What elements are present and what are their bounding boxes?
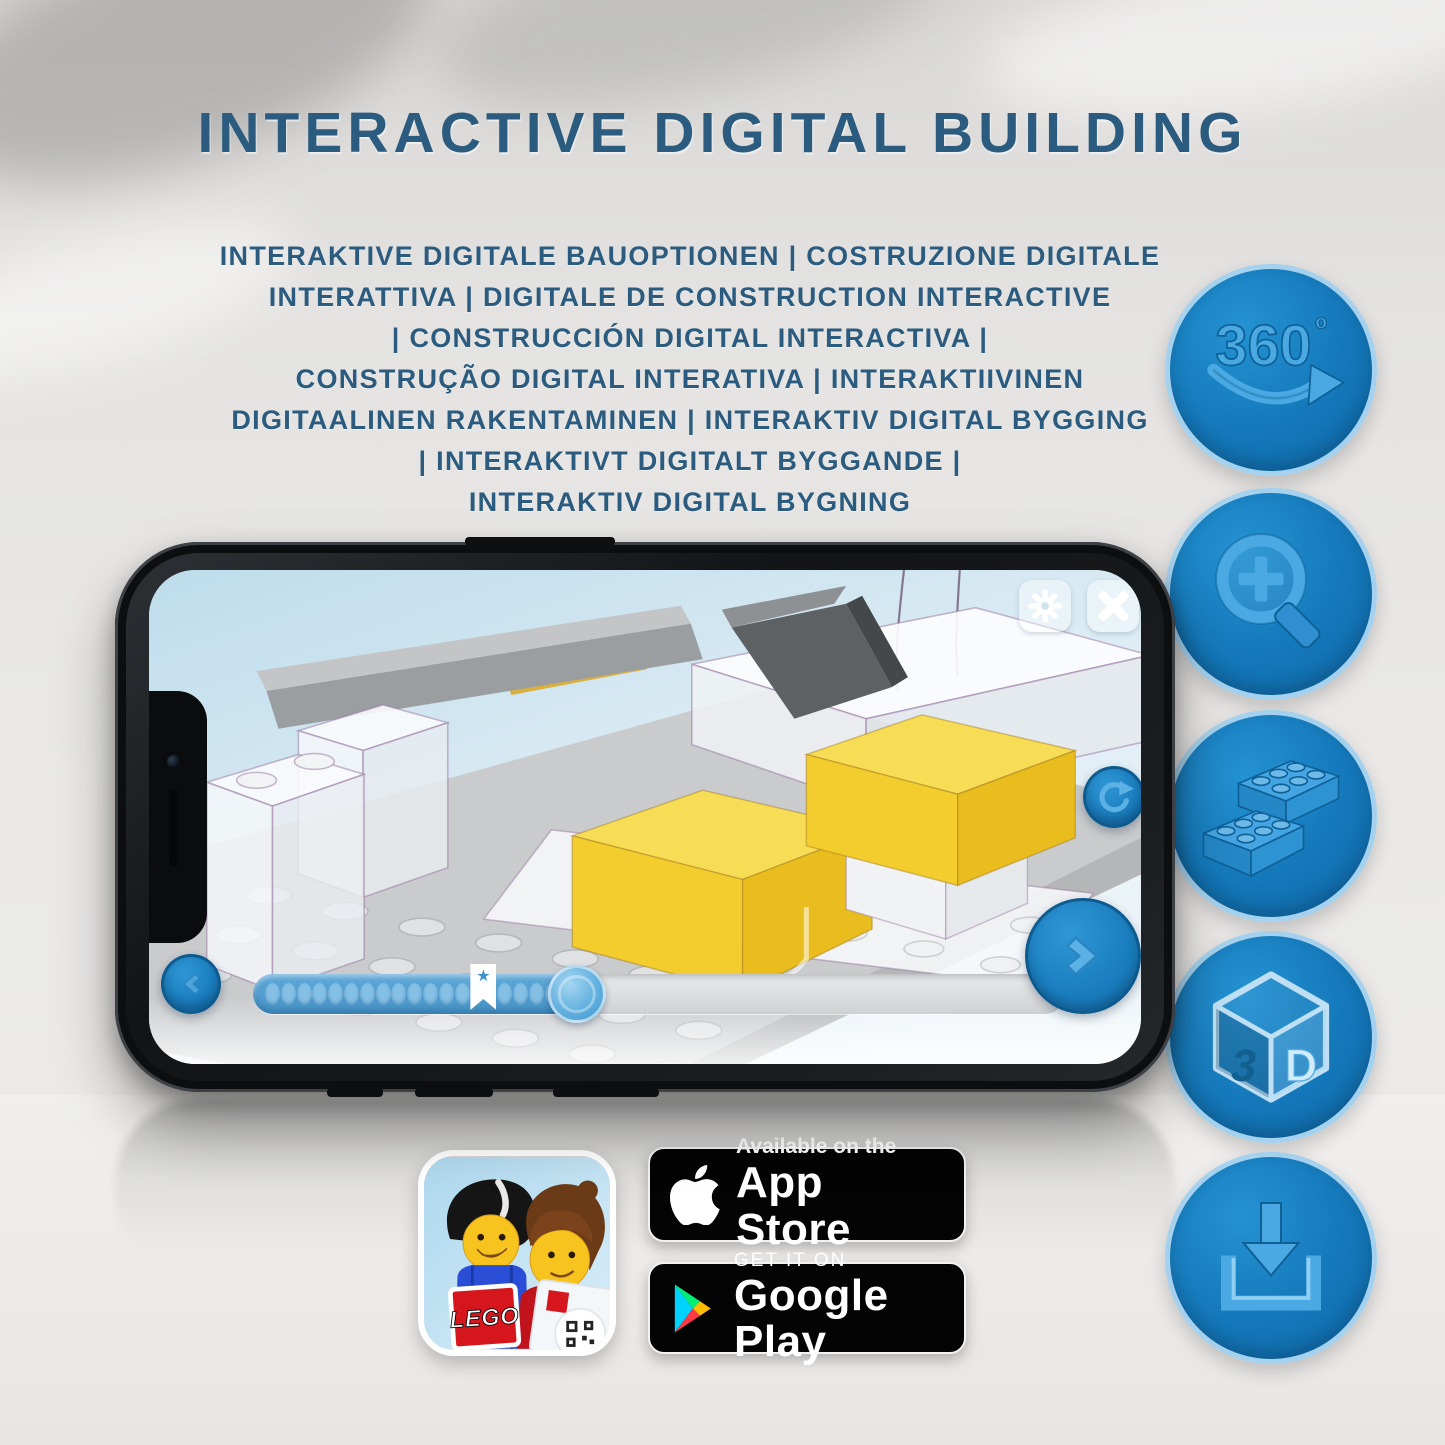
step-dot (360, 983, 375, 1005)
page-title: INTERACTIVE DIGITAL BUILDING (0, 100, 1445, 166)
subtitle-line: CONSTRUÇÃO DIGITAL INTERATIVA | INTERAKT… (140, 359, 1240, 400)
apple-logo-icon (670, 1165, 720, 1225)
previous-step-button[interactable] (161, 954, 221, 1014)
3d-view-icon: 3 D (1165, 931, 1377, 1143)
subtitle-line: INTERATTIVA | DIGITALE DE CONSTRUCTION I… (140, 277, 1240, 318)
multilingual-subtitle: INTERAKTIVE DIGITALE BAUOPTIONEN | COSTR… (140, 236, 1240, 523)
360-rotation-icon: 360 º (1165, 264, 1377, 476)
phone-mockup: ★ (115, 542, 1175, 1092)
building-bricks-icon (1165, 710, 1377, 922)
step-dot (497, 983, 512, 1005)
google-play-badge[interactable]: GET IT ON Google Play (648, 1262, 966, 1354)
download-icon (1165, 1152, 1377, 1364)
settings-button[interactable] (1019, 580, 1071, 632)
phone-reflection (115, 1099, 1175, 1279)
step-dot (513, 983, 528, 1005)
app-store-name: App Store (736, 1160, 944, 1252)
step-dot (529, 983, 544, 1005)
3d-left-letter: 3 (1231, 1040, 1256, 1091)
next-step-button[interactable] (1025, 898, 1141, 1014)
slider-fill: ★ (253, 974, 578, 1014)
step-dot (376, 983, 391, 1005)
step-dot (391, 983, 406, 1005)
marketing-page: INTERACTIVE DIGITAL BUILDING INTERAKTIVE… (0, 0, 1445, 1445)
app-screen: ★ (149, 570, 1141, 1064)
slider-thumb[interactable] (548, 965, 606, 1023)
app-store-badge[interactable]: Available on the App Store (648, 1147, 966, 1242)
subtitle-line: | INTERAKTIVT DIGITALT BYGGANDE | (140, 441, 1240, 482)
step-dot (328, 983, 343, 1005)
earpiece-speaker (169, 789, 178, 867)
gear-icon (1025, 586, 1065, 626)
rotate-icon (1092, 775, 1136, 819)
build-progress-slider[interactable]: ★ (253, 974, 1065, 1014)
volume-button (415, 1088, 493, 1097)
lego-app-icon[interactable]: LEGO (418, 1150, 616, 1356)
step-dot (265, 983, 280, 1005)
side-button (465, 537, 615, 546)
degree-symbol: º (1315, 311, 1327, 347)
360-label: 360 (1216, 314, 1312, 378)
rotate-view-button[interactable] (1083, 766, 1141, 828)
step-dot (423, 983, 438, 1005)
subtitle-line: | CONSTRUCCIÓN DIGITAL INTERACTIVA | (140, 318, 1240, 359)
step-dot (344, 983, 359, 1005)
subtitle-line: INTERAKTIV DIGITAL BYGNING (140, 482, 1240, 523)
step-dot (312, 983, 327, 1005)
3d-right-letter: D (1285, 1040, 1318, 1091)
side-button (553, 1088, 659, 1097)
front-camera (167, 755, 180, 768)
volume-button (327, 1088, 383, 1097)
slider-dots: ★ (265, 974, 560, 1014)
step-dot (439, 983, 454, 1005)
step-dot (407, 983, 422, 1005)
zoom-in-magnifier-icon (1165, 488, 1377, 700)
chevron-left-icon (174, 967, 208, 1001)
step-dot (455, 983, 470, 1005)
phone-notch (149, 691, 207, 943)
step-dot (281, 983, 296, 1005)
step-dot (297, 983, 312, 1005)
lego-logo-text: LEGO (449, 1302, 520, 1333)
close-button[interactable] (1087, 580, 1139, 632)
bookmark-marker[interactable]: ★ (470, 964, 496, 1010)
star-icon: ★ (476, 964, 490, 1010)
subtitle-line: DIGITAALINEN RAKENTAMINEN | INTERAKTIV D… (140, 400, 1240, 441)
chevron-right-icon (1054, 927, 1112, 985)
google-play-tagline: GET IT ON (734, 1251, 944, 1271)
app-store-tagline: Available on the (736, 1136, 944, 1158)
google-play-name: Google Play (734, 1273, 944, 1365)
subtitle-line: INTERAKTIVE DIGITALE BAUOPTIONEN | COSTR… (140, 236, 1240, 277)
google-play-logo-icon (670, 1282, 718, 1335)
